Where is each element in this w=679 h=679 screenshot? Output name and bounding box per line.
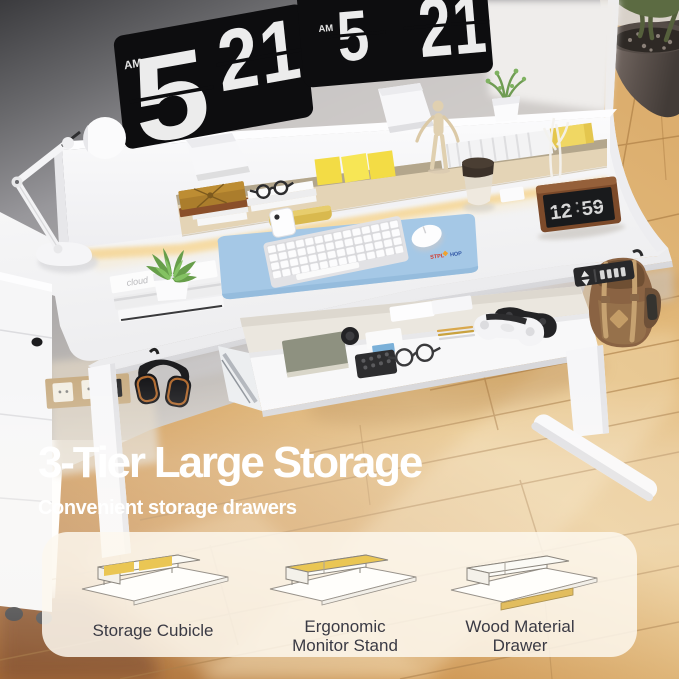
svg-text:Convenient storage drawers: Convenient storage drawers — [38, 497, 297, 519]
svg-text:5: 5 — [334, 0, 372, 77]
svg-text:Storage Cubicle: Storage Cubicle — [93, 621, 214, 640]
svg-text:Drawer: Drawer — [493, 636, 548, 655]
svg-text:Wood Material: Wood Material — [465, 617, 574, 636]
svg-text:59: 59 — [580, 196, 605, 221]
svg-text:21: 21 — [415, 0, 491, 76]
svg-text:21: 21 — [213, 0, 307, 110]
svg-text:Ergonomic: Ergonomic — [304, 617, 386, 636]
svg-text:3-Tier Large Storage: 3-Tier Large Storage — [38, 438, 422, 487]
svg-text:12: 12 — [549, 200, 574, 225]
svg-text:AM: AM — [318, 23, 334, 35]
svg-text:Monitor Stand: Monitor Stand — [292, 636, 398, 655]
